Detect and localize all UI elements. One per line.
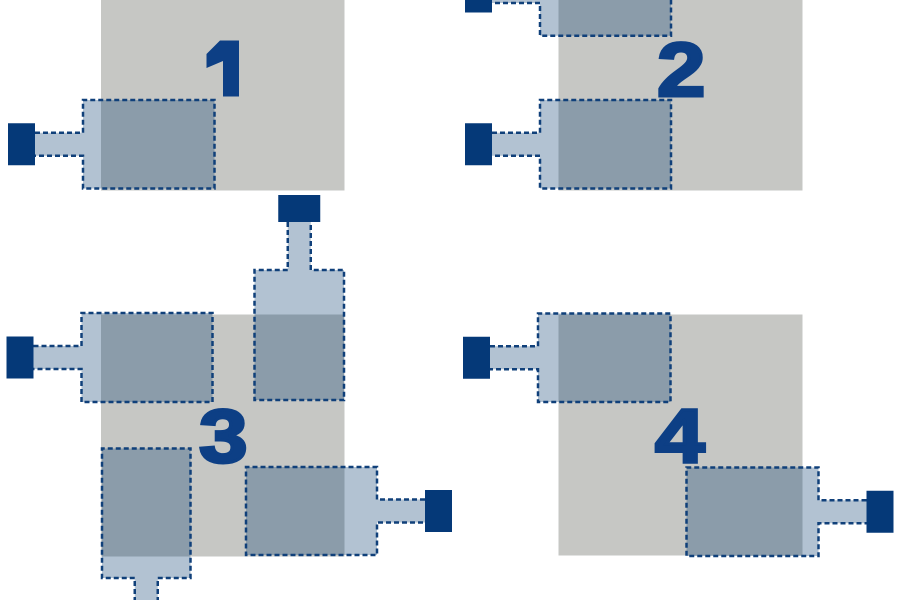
svg-text:3: 3 [199,395,248,479]
svg-text:4: 4 [655,393,705,478]
